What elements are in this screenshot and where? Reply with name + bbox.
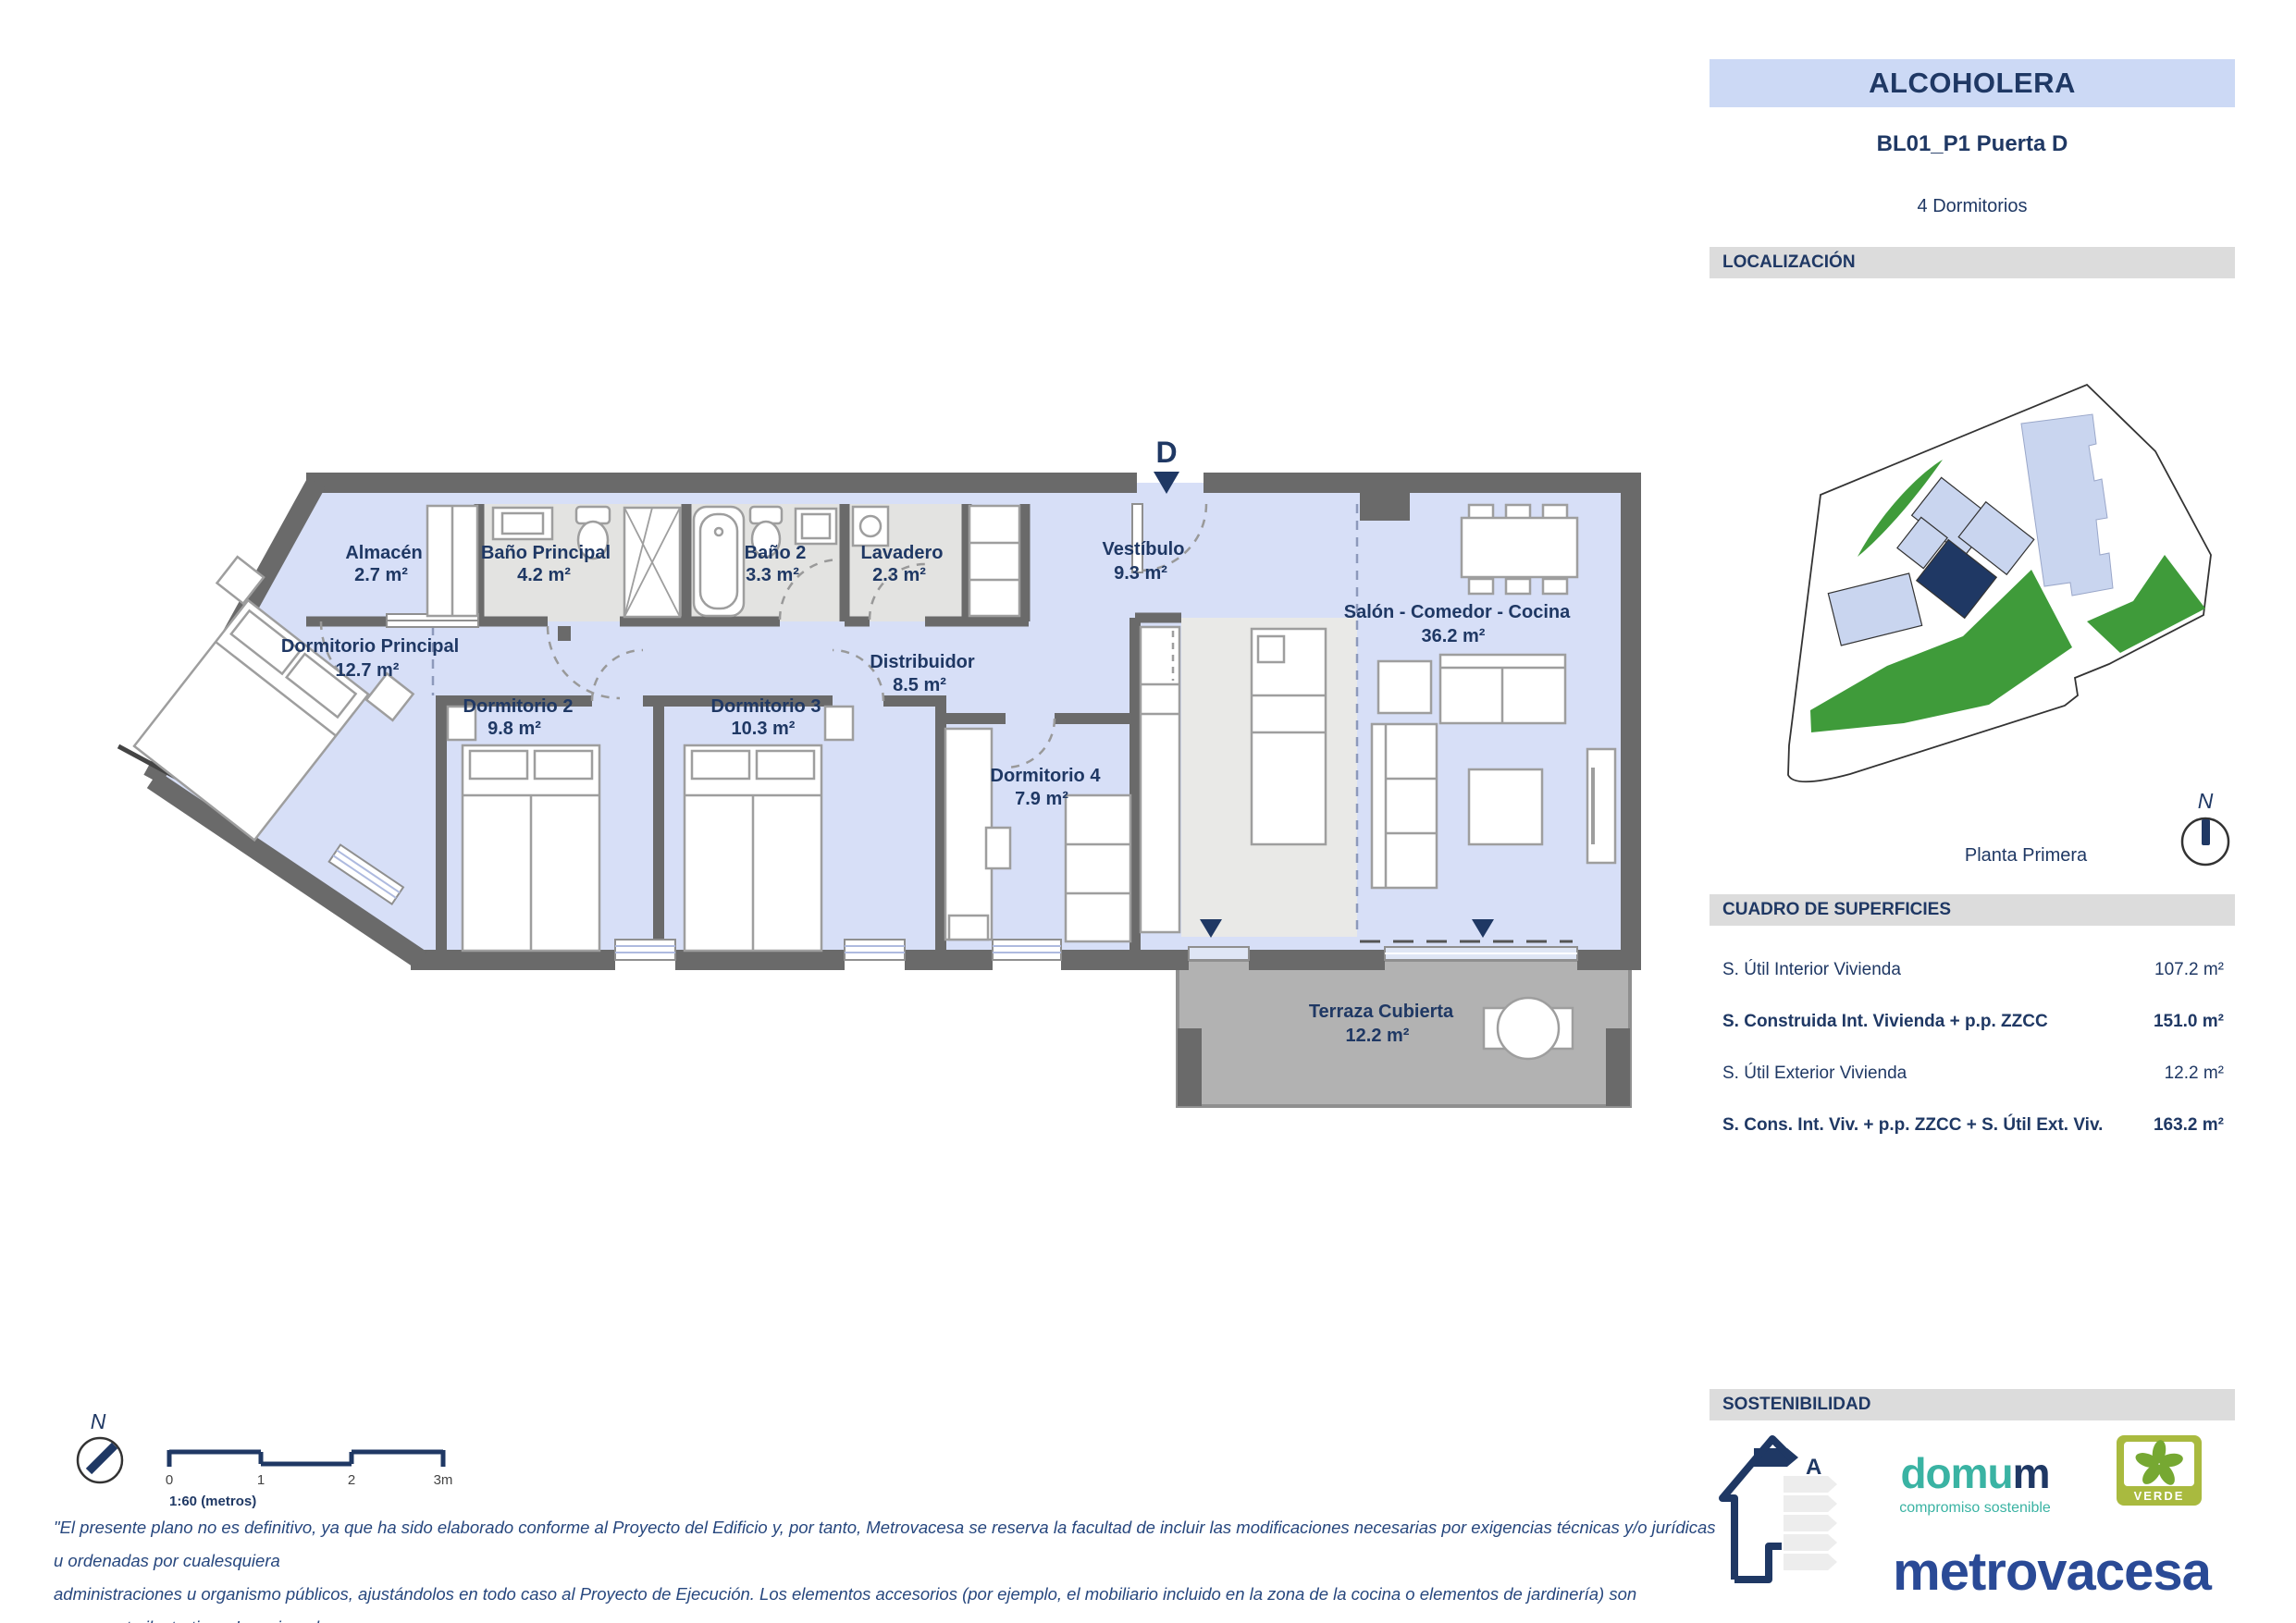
room-area: 9.3 m² [1114, 563, 1167, 584]
north-letter: N [2198, 789, 2214, 813]
north-letter: N [91, 1409, 106, 1433]
room-label: Terraza Cubierta [1309, 1002, 1454, 1022]
surface-row: S. Útil Exterior Vivienda 12.2 m² [1710, 1060, 2235, 1088]
terrace-post [1178, 1028, 1202, 1106]
north-compass: N [2165, 781, 2248, 874]
room-label: Dormitorio 3 [711, 696, 821, 717]
room-area: 8.5 m² [893, 675, 946, 695]
scale-bar [169, 1450, 443, 1467]
surface-label: S. Cons. Int. Viv. + p.p. ZZCC + S. Útil… [1710, 1115, 2103, 1136]
room-label: Almacén [345, 543, 422, 563]
domum-logo: domum [1887, 1448, 2063, 1498]
room-area: 2.7 m² [354, 565, 408, 585]
room-area: 9.8 m² [488, 719, 541, 739]
floor-plan: D Almacén 2.7 m² Baño Principal 4.2 m² B… [46, 398, 1711, 1156]
room-area: 12.7 m² [336, 660, 400, 681]
room-label: Distribuidor [870, 652, 975, 672]
disclaimer-line: "El presente plano no es definitivo, ya … [54, 1511, 1719, 1578]
unit-code: BL01_P1 Puerta D [1710, 131, 2235, 157]
room-label: Lavadero [861, 543, 944, 563]
surface-value: 163.2 m² [2154, 1115, 2235, 1136]
terrace-post [1606, 1028, 1630, 1106]
verde-label: VERDE [2134, 1489, 2185, 1503]
scale-ticks: 0 1 2 3m [166, 1472, 453, 1488]
wall-pillar [558, 626, 571, 641]
entrance-door-label: D [1155, 436, 1177, 469]
scale-ratio-label: 1:60 (metros) [169, 1494, 256, 1509]
room-label: Baño 2 [745, 543, 807, 563]
surface-value: 151.0 m² [2154, 1012, 2235, 1032]
room-label: Dormitorio 2 [463, 696, 574, 717]
section-sostenibilidad-label: SOSTENIBILIDAD [1722, 1395, 1870, 1415]
floorplan-sheet: D Almacén 2.7 m² Baño Principal 4.2 m² B… [0, 0, 2296, 1623]
surface-row: S. Útil Interior Vivienda 107.2 m² [1710, 956, 2235, 984]
domum-navy: m [2013, 1449, 2050, 1497]
surface-row: S. Construida Int. Vivienda + p.p. ZZCC … [1710, 1008, 2235, 1036]
room-area: 2.3 m² [872, 565, 926, 585]
scale-and-compass: N 0 1 2 3m 1:60 (metros) [46, 1406, 527, 1512]
room-area: 12.2 m² [1346, 1026, 1410, 1046]
svg-text:0: 0 [166, 1472, 173, 1488]
wall-stub [1360, 493, 1410, 521]
location-map [1758, 365, 2239, 800]
surface-label: S. Construida Int. Vivienda + p.p. ZZCC [1710, 1012, 2048, 1032]
svg-text:1: 1 [257, 1472, 265, 1488]
section-cuadro-superficies: CUADRO DE SUPERFICIES [1710, 894, 2235, 926]
room-label: Dormitorio Principal [281, 636, 459, 657]
project-title: ALCOHOLERA [1710, 59, 2235, 107]
floor-level-label: Planta Primera [1906, 845, 2146, 867]
room-area: 36.2 m² [1422, 626, 1486, 646]
section-localizacion-label: LOCALIZACIÓN [1722, 252, 1856, 273]
surface-label: S. Útil Interior Vivienda [1710, 960, 1901, 980]
domum-teal: domu [1900, 1449, 2012, 1497]
room-area: 4.2 m² [517, 565, 571, 585]
surface-label: S. Útil Exterior Vivienda [1710, 1064, 1907, 1084]
bedrooms-count: 4 Dormitorios [1710, 196, 2235, 217]
room-label: Dormitorio 4 [991, 766, 1102, 786]
room-label: Baño Principal [481, 543, 611, 563]
disclaimer-line: administraciones u organismo públicos, a… [54, 1578, 1719, 1623]
surface-value: 12.2 m² [2165, 1064, 2235, 1084]
room-area: 7.9 m² [1015, 789, 1068, 809]
svg-text:3m: 3m [434, 1472, 453, 1488]
svg-text:2: 2 [348, 1472, 355, 1488]
energy-bars [1784, 1476, 1837, 1570]
domum-tagline: compromiso sostenible [1867, 1500, 2083, 1517]
section-cuadro-label: CUADRO DE SUPERFICIES [1722, 900, 1951, 920]
surface-value: 107.2 m² [2154, 960, 2235, 980]
energy-rating-letter: A [1806, 1455, 1821, 1480]
verde-badge: VERDE [2113, 1432, 2205, 1509]
section-localizacion: LOCALIZACIÓN [1710, 247, 2235, 278]
room-area: 3.3 m² [746, 565, 799, 585]
disclaimer-text: "El presente plano no es definitivo, ya … [54, 1511, 1719, 1623]
surface-row: S. Cons. Int. Viv. + p.p. ZZCC + S. Útil… [1710, 1112, 2235, 1139]
room-area: 10.3 m² [732, 719, 796, 739]
energy-rating-icon: A [1707, 1429, 1855, 1595]
room-label: Salón - Comedor - Cocina [1344, 602, 1571, 622]
metrovacesa-logo: metrovacesa [1858, 1541, 2246, 1603]
room-label: Vestíbulo [1103, 539, 1185, 559]
section-sostenibilidad: SOSTENIBILIDAD [1710, 1389, 2235, 1420]
